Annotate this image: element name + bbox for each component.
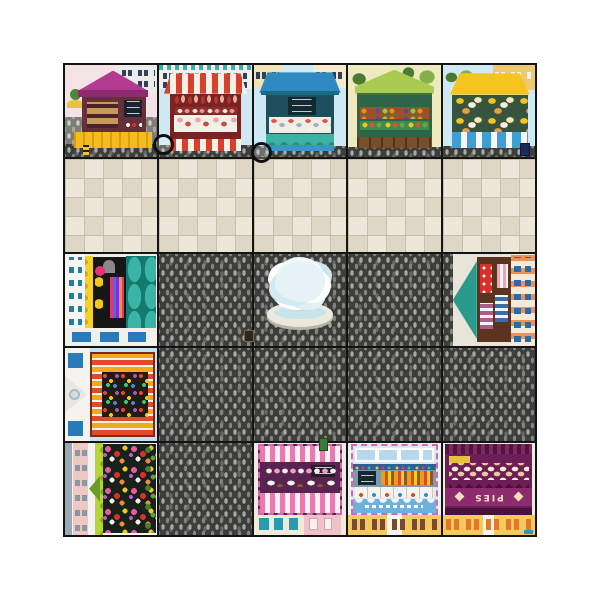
awning <box>164 73 247 93</box>
polka-dress <box>480 264 492 293</box>
tile-toy-shop <box>348 443 440 535</box>
yellow-post-marker <box>83 145 89 155</box>
menu-board <box>124 100 142 117</box>
stall-body <box>452 95 528 132</box>
tile-candy-shop <box>65 254 157 346</box>
tile-cobbles-5 <box>348 348 440 440</box>
meat-counter <box>174 115 237 131</box>
houses-behind <box>443 515 535 535</box>
baskets <box>357 137 433 148</box>
foliage <box>143 444 156 533</box>
tile-paving-4 <box>348 159 440 251</box>
chevron-row <box>449 481 529 488</box>
tile-cobbles-2 <box>348 254 440 346</box>
arch <box>103 260 114 273</box>
shop-facade <box>511 254 535 346</box>
skylights <box>355 448 435 463</box>
shelf <box>175 107 237 113</box>
goods <box>124 121 142 127</box>
playmat-product-image: PIES <box>0 0 600 600</box>
tile-clothes-shop <box>443 254 535 346</box>
shop-interior <box>93 257 126 327</box>
fabric-stack <box>495 295 509 322</box>
stall-body <box>82 97 147 133</box>
bread-shelves <box>87 102 118 129</box>
skirt <box>170 139 240 151</box>
street-edge <box>443 254 453 346</box>
sign-text-illegible <box>365 505 423 508</box>
canopy <box>259 72 340 92</box>
shop-interior <box>353 470 436 487</box>
plaque-marker <box>244 330 254 342</box>
tile-paving-3 <box>254 159 346 251</box>
fountain <box>261 259 339 333</box>
tile-flower-shop <box>65 443 157 535</box>
awning-sign <box>353 499 436 512</box>
tile-cobbles-1 <box>159 254 251 346</box>
canopy-top <box>126 256 156 330</box>
stall-body <box>357 95 433 137</box>
pie-shelves <box>449 463 529 480</box>
tile-pie-shop: PIES <box>443 443 535 535</box>
shop-block: PIES <box>445 444 532 514</box>
yellow-sign <box>449 456 470 462</box>
shop-facade <box>65 348 90 440</box>
toy-shelves <box>381 471 432 485</box>
houses-behind <box>254 515 346 535</box>
stall-body <box>170 94 240 139</box>
trim <box>445 508 532 515</box>
tile-cobbles-6 <box>443 348 535 440</box>
awning <box>453 261 477 339</box>
tile-paving-5 <box>443 159 535 251</box>
connector-ring <box>153 134 174 155</box>
ground-dark <box>348 147 440 157</box>
tile-newsagent-shop <box>65 348 157 440</box>
cake-stands <box>264 478 337 487</box>
tile-bakery-stall <box>65 65 157 157</box>
shop-facade <box>65 254 85 328</box>
striped-awning <box>90 352 155 437</box>
water-strip <box>266 145 334 151</box>
green-crate-marker <box>319 438 328 451</box>
stall-body <box>266 95 334 136</box>
tile-cake-shop <box>254 443 346 535</box>
counter <box>452 132 528 149</box>
houses-behind <box>348 515 440 535</box>
ribbed-roof <box>445 444 532 454</box>
tile-paving-1 <box>65 159 157 251</box>
tile-cobbles-7 <box>159 443 251 535</box>
pink-lolly <box>95 266 105 276</box>
shop-block <box>351 444 438 514</box>
canopy <box>450 73 529 94</box>
produce-shelf <box>360 121 430 130</box>
cupcake-row <box>264 466 337 477</box>
tile-cobbles-4 <box>254 348 346 440</box>
navy-sign-marker <box>520 143 530 156</box>
hay-mound <box>67 100 83 108</box>
lower-facade <box>65 328 157 346</box>
display-cases <box>355 487 435 498</box>
playmat: PIES <box>63 63 537 537</box>
striped-shirt <box>497 264 509 288</box>
connector-ring <box>251 142 272 163</box>
tile-cobbles-3 <box>159 348 251 440</box>
candy-jars <box>110 277 124 318</box>
tent-valance <box>78 90 148 97</box>
shop-block <box>258 444 341 514</box>
chalkboard-menu <box>288 97 317 115</box>
tile-fountain-square <box>254 254 346 346</box>
fish-counter <box>269 117 331 133</box>
fountain-plume <box>275 261 325 302</box>
tile-greengrocer-stall <box>348 65 440 157</box>
shop-interior <box>477 257 511 342</box>
blackboard <box>358 471 376 485</box>
sign-band: PIES <box>445 488 532 506</box>
magazine-display <box>102 372 148 417</box>
awning-trim <box>85 256 92 328</box>
fabric-stack <box>480 303 493 328</box>
awning-lower <box>260 493 339 513</box>
produce-crates <box>360 107 430 119</box>
tile-paving-2 <box>159 159 251 251</box>
pies-sign-text: PIES <box>445 492 532 502</box>
lollipops <box>95 274 104 320</box>
hanging-meats <box>173 95 238 105</box>
